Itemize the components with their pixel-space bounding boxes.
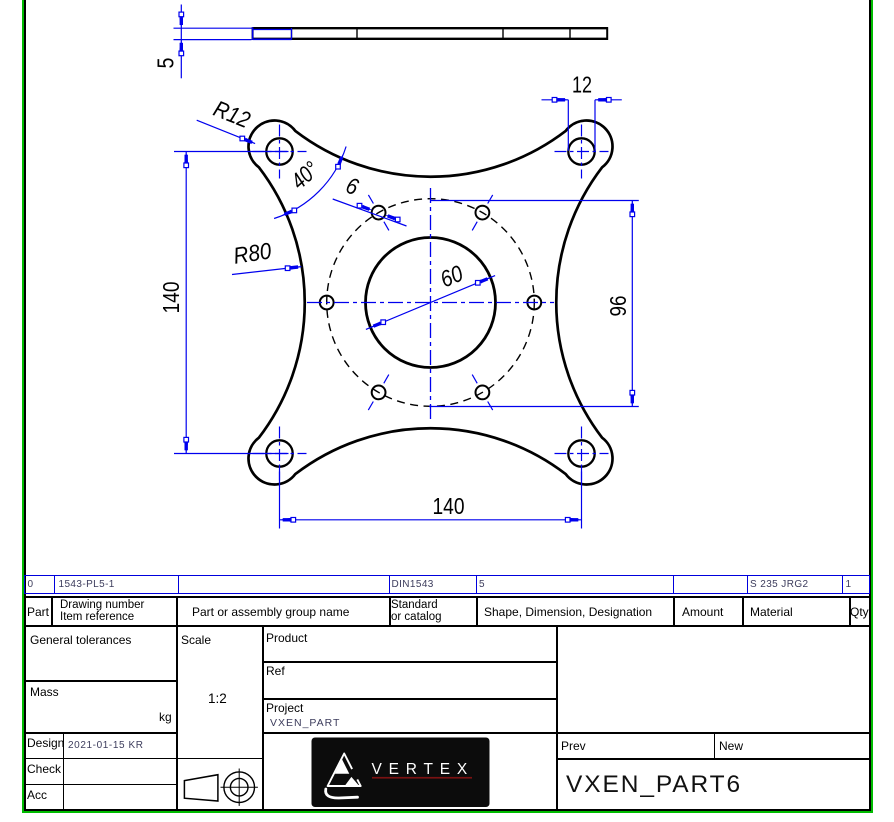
svg-text:6: 6 bbox=[343, 172, 362, 200]
svg-text:5: 5 bbox=[153, 58, 179, 69]
svg-text:R80: R80 bbox=[232, 237, 274, 269]
svg-text:96: 96 bbox=[605, 296, 631, 317]
svg-text:40°: 40° bbox=[286, 156, 324, 194]
svg-text:60: 60 bbox=[436, 260, 466, 293]
svg-text:VERTEX: VERTEX bbox=[372, 761, 475, 778]
svg-text:140: 140 bbox=[433, 493, 465, 519]
svg-text:12: 12 bbox=[572, 72, 592, 98]
svg-text:R12: R12 bbox=[210, 95, 254, 133]
svg-text:140: 140 bbox=[158, 282, 184, 314]
